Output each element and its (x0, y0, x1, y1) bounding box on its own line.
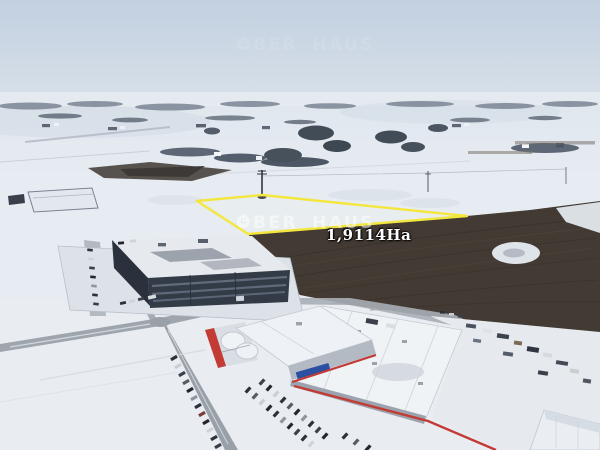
sky (0, 0, 600, 114)
watermark-top: OBER HAUS (236, 35, 375, 55)
watermark-text-right: HAUS (312, 35, 375, 55)
aerial-photo: OBER HAUS OBER HAUS 1,9114Ha (0, 0, 600, 450)
plot-area-label: 1,9114Ha (326, 226, 411, 244)
